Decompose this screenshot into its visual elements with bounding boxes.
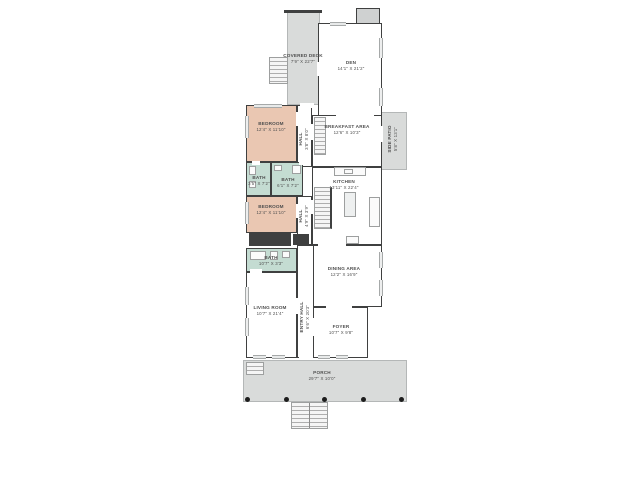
label-porch: PORCH 29'7" X 10'0" [309,370,336,382]
label-bedroom-1: BEDROOM 12'4" X 11'10" [256,121,285,133]
label-side-patio: SIDE PATIO 5'8" X 13'1" [387,125,399,152]
porch-column [284,397,289,402]
window-marker [245,116,249,138]
porch-column [245,397,250,402]
door-opening [326,305,352,310]
front-door-opening [299,355,313,360]
door-opening [318,243,346,248]
interior-stairs-lower [314,187,332,229]
shower [292,165,301,174]
door-opening [252,161,260,165]
closet [293,234,309,245]
label-kitchen: KITCHEN 13'11" X 22'4" [329,179,358,191]
door-opening [300,103,314,108]
window-marker [379,38,383,58]
label-covered-deck: COVERED DECK 7'9" X 22'7" [283,53,322,65]
kitchen-appliances [369,197,380,227]
window-marker [245,202,249,224]
closet [249,233,291,246]
label-foyer: FOYER 10'7" X 9'8" [329,324,353,336]
window-marker [330,22,346,26]
label-living-room: LIVING ROOM 10'7" X 21'4" [253,305,286,317]
window-marker [336,355,348,359]
door-opening [312,318,316,336]
window-marker [272,355,285,359]
label-dining-area: DINING AREA 12'2" X 16'9" [328,266,360,278]
kitchen-range [346,236,359,244]
window-marker [379,88,383,106]
door-opening [310,200,314,214]
door-opening [336,114,374,119]
kitchen-island [344,192,356,217]
interior-stairs-upper [314,117,326,155]
label-breakfast-area: BREAKFAST AREA 12'6" X 10'3" [324,124,369,136]
window-marker [254,104,282,108]
porch-column [399,397,404,402]
door-opening [296,112,300,126]
floor-plan: COVERED DECK 7'9" X 22'7" DEN 14'1" X 21… [0,0,640,480]
label-hall-1: HALL 3'8" X 8'0" [298,128,310,150]
window-marker [318,355,330,359]
sink [274,165,282,171]
label-den: DEN 14'1" X 21'2" [338,60,365,72]
label-bath-3: BATH 10'7" X 3'3" [259,255,283,267]
door-opening [250,269,262,274]
porch-front-stairs [291,402,328,429]
porch-side-stairs [246,362,264,375]
label-bedroom-2: BEDROOM 12'4" X 11'10" [256,204,285,216]
door-opening [310,124,314,140]
label-hall-2: HALL 4'9" X 3'9" [298,205,310,227]
window-marker [245,318,249,336]
room-bedroom-1 [246,105,297,162]
toilet [249,166,256,175]
window-marker [253,355,266,359]
window-marker [379,252,383,268]
sink [282,251,290,258]
label-bath-1: BATH 3'5" X 7'2" [248,175,270,187]
label-entry-hall: ENTRY HALL 6'6" X 20'3" [299,302,311,333]
window-marker [379,280,383,296]
deck-top-wall [284,10,322,13]
porch-column [322,397,327,402]
window-marker [245,287,249,305]
kitchen-sink [344,169,353,174]
door-opening [299,161,309,165]
porch-column [361,397,366,402]
label-bath-2: BATH 6'1" X 7'2" [277,177,299,189]
door-opening [379,126,383,142]
